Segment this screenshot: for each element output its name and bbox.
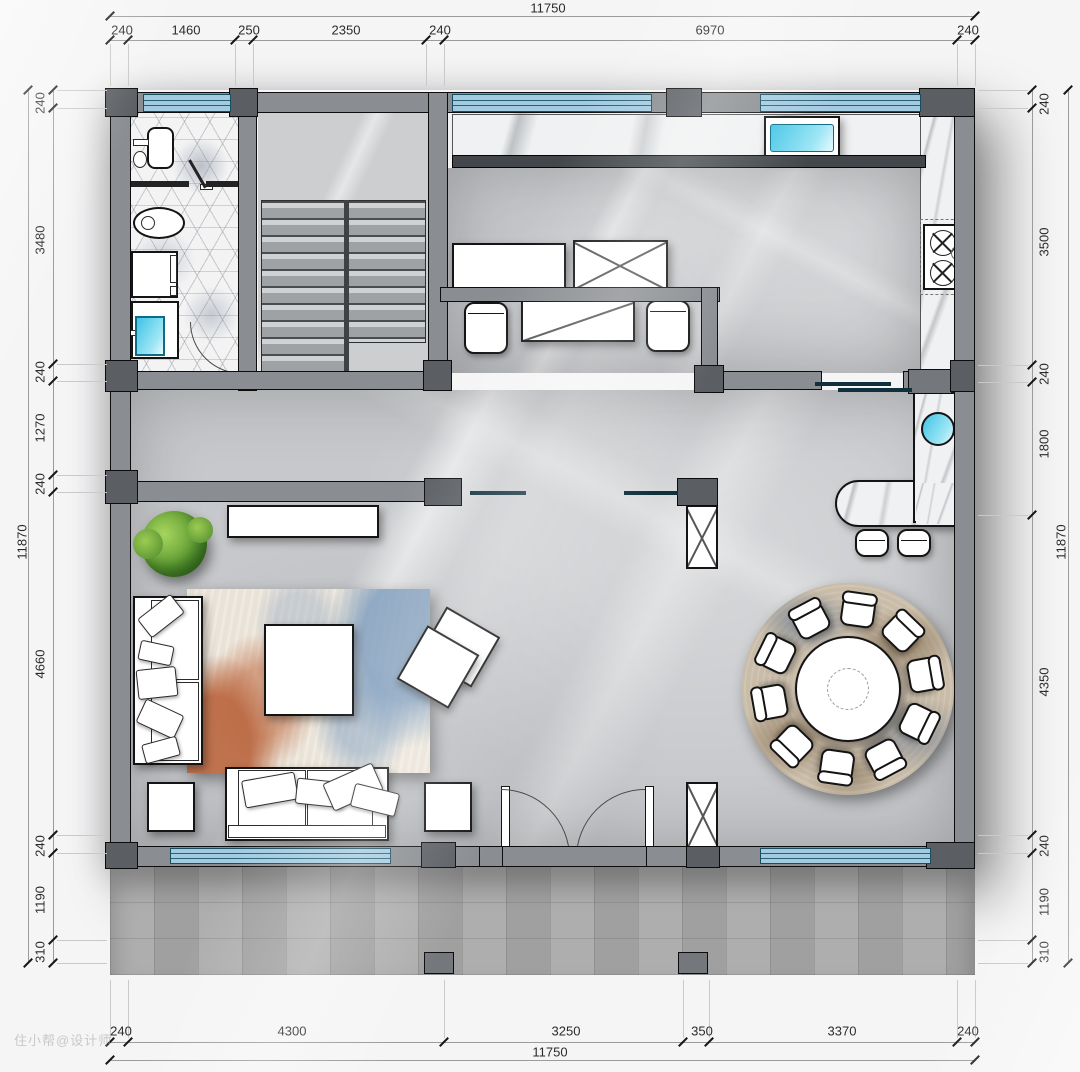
window [170, 848, 391, 864]
sofa-backrest [228, 825, 386, 838]
washer-panel [170, 255, 177, 283]
stair-stringer [344, 200, 349, 390]
toilet-flush [141, 216, 155, 230]
wall-living-partition [110, 481, 462, 502]
mop-sink [135, 316, 165, 356]
side-table [147, 782, 195, 832]
dim-line-bottom-overall [110, 1060, 975, 1061]
patio-column [424, 952, 454, 974]
wall-stair-east [428, 92, 448, 391]
stair-flight-left [261, 200, 345, 390]
basin-faucet [133, 139, 149, 146]
dim-line-top-segs [110, 40, 975, 41]
dim-label: 1190 [1037, 888, 1052, 916]
pier [105, 470, 138, 504]
dim-label: 4350 [1037, 668, 1052, 697]
dim-label: 240 [33, 473, 48, 495]
tv-console [227, 505, 379, 538]
dim-label: 240 [1037, 93, 1052, 115]
dim-label: 250 [238, 23, 260, 38]
bar-table [521, 300, 635, 342]
sliding-door-panel [815, 382, 891, 386]
kitchen-counter-top [452, 114, 922, 158]
stair-flight-right [348, 200, 426, 343]
pillow [136, 666, 179, 700]
dim-label: 240 [957, 1024, 979, 1039]
dining-chair [839, 595, 877, 629]
water-bar-join [916, 483, 954, 524]
sliding-door-panel [624, 491, 678, 495]
dining-chair [754, 683, 789, 722]
pier [677, 478, 718, 506]
dim-label: 6970 [696, 23, 725, 38]
pier [105, 88, 138, 117]
pier [105, 842, 138, 869]
pier [229, 88, 258, 117]
dim-label: 3480 [33, 226, 48, 255]
wall-bathroom-east [238, 112, 257, 391]
stove-burner-icon [930, 260, 956, 286]
dim-label: 3250 [552, 1024, 581, 1039]
sideboard-cabinet [452, 243, 566, 290]
pier [919, 88, 975, 117]
lazy-susan-dashed [827, 668, 869, 710]
wall-bath-partition [206, 181, 238, 187]
dim-label: 240 [33, 835, 48, 857]
patio-column [678, 952, 708, 974]
window [143, 94, 231, 112]
dim-label: 310 [33, 941, 48, 963]
dim-label: 240 [111, 23, 133, 38]
cabinet-with-cross [573, 240, 668, 290]
window [760, 848, 931, 864]
dim-label-bottom-overall: 11750 [532, 1045, 567, 1060]
dim-label-top-overall: 11750 [530, 1, 565, 16]
dim-line-top-overall [110, 16, 975, 17]
dining-chair [905, 656, 940, 695]
wall-bar [440, 287, 720, 302]
dim-label: 4300 [278, 1024, 307, 1039]
pier [424, 478, 462, 506]
round-sink [921, 412, 955, 446]
pier [694, 365, 724, 393]
dim-label: 1800 [1037, 430, 1052, 459]
dim-label: 3500 [1037, 228, 1052, 257]
pier [666, 88, 702, 117]
pier [950, 360, 975, 392]
column-casing [686, 505, 718, 569]
wall-mid-left [110, 371, 450, 390]
washer-panel [170, 286, 177, 296]
window [452, 94, 652, 112]
pier [105, 360, 138, 392]
pier [686, 846, 720, 868]
dim-label: 240 [33, 361, 48, 383]
bar-stool [646, 300, 690, 352]
dim-label: 350 [691, 1024, 713, 1039]
pier [908, 369, 952, 394]
water-bar-stool [855, 529, 889, 557]
pier [423, 360, 452, 391]
water-bar-stool [897, 529, 931, 557]
sliding-door-panel [838, 388, 912, 392]
dim-label: 3370 [828, 1024, 857, 1039]
bar-stool [464, 302, 508, 354]
pier [421, 842, 456, 868]
dim-label-left-overall: 11870 [15, 524, 30, 559]
wall-stub [646, 846, 689, 867]
dim-label: 1190 [33, 886, 48, 914]
dim-label-right-overall: 11870 [1054, 524, 1069, 559]
dim-line-bottom-segs [110, 1042, 975, 1043]
kitchen-sink-basin [770, 124, 834, 152]
pier [926, 842, 975, 869]
dim-label: 1270 [33, 414, 48, 443]
watermark: 住小帮@设计师 [14, 1030, 112, 1049]
floor-plan-canvas: 11750 240 1460 250 2350 240 6970 240 240… [0, 0, 1080, 1072]
dim-label: 240 [1037, 835, 1052, 857]
wash-basin [147, 127, 174, 169]
table-diagonal-line [521, 302, 635, 342]
window [760, 94, 921, 112]
plant [141, 511, 207, 577]
dining-chair [818, 748, 856, 782]
side-table [424, 782, 472, 832]
dim-label: 240 [33, 92, 48, 114]
soap-dish [133, 151, 147, 168]
coffee-table [264, 624, 354, 716]
dim-label: 310 [1037, 941, 1052, 963]
wall-right [954, 92, 975, 867]
wall-counter-back [452, 155, 926, 168]
dim-label: 4660 [33, 650, 48, 679]
patio-paving [110, 867, 975, 975]
column-casing [686, 782, 718, 848]
dim-label: 2350 [332, 23, 361, 38]
wall-stub [479, 846, 503, 867]
dim-label: 1460 [172, 23, 201, 38]
wall-bath-partition [131, 181, 189, 187]
sliding-door-panel [470, 491, 526, 495]
dim-label: 240 [957, 23, 979, 38]
dim-label: 240 [429, 23, 451, 38]
dim-label: 240 [1037, 363, 1052, 385]
dim-label: 240 [110, 1024, 132, 1039]
